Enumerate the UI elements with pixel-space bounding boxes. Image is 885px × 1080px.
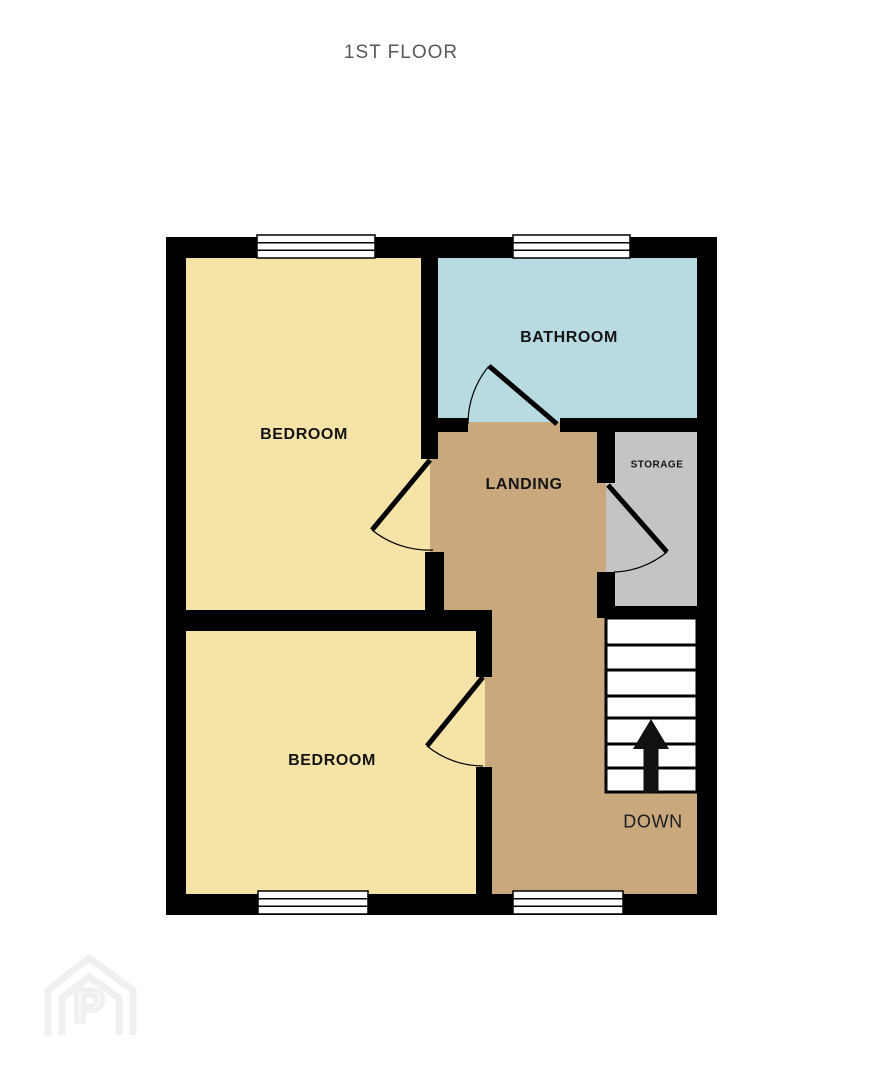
page-title: 1ST FLOOR: [344, 42, 458, 64]
brand-watermark: P: [48, 958, 133, 1035]
window-bedroom2-bottom: [258, 891, 368, 914]
wall-between-bedrooms: [166, 610, 492, 631]
window-landing-bottom: [513, 891, 623, 914]
landing-label: LANDING: [485, 476, 562, 494]
floorplan-drawing: P: [0, 0, 885, 1080]
storage-label: STORAGE: [631, 460, 684, 471]
wall-bedroom2-landing-upper: [476, 631, 492, 677]
wall-outer-left: [166, 237, 186, 915]
stairs-down-label: DOWN: [623, 812, 682, 833]
wall-outer-bottom: [166, 894, 717, 915]
wall-storage-stairs: [597, 606, 717, 618]
window-bedroom1-top: [257, 235, 375, 258]
bedroom-2-label: BEDROOM: [288, 752, 376, 770]
bedroom-1-label: BEDROOM: [260, 426, 348, 444]
wall-bedroom2-landing-lower: [476, 767, 492, 895]
wall-outer-top: [166, 237, 717, 258]
staircase: [606, 618, 697, 793]
storage-room: [606, 425, 707, 612]
wall-bedroom1-landing-lower: [425, 552, 444, 614]
floorplan-page: P 1ST FLOOR BEDROOM BATHROOM LANDING STO…: [0, 0, 885, 1080]
watermark-letter: P: [74, 980, 105, 1032]
wall-landing-storage-upper: [597, 432, 615, 483]
bathroom-label: BATHROOM: [520, 329, 618, 347]
window-bathroom-top: [513, 235, 630, 258]
wall-bathroom-bottom-right: [560, 418, 697, 432]
wall-bathroom-bottom-left: [421, 418, 468, 432]
wall-outer-right: [697, 237, 717, 915]
